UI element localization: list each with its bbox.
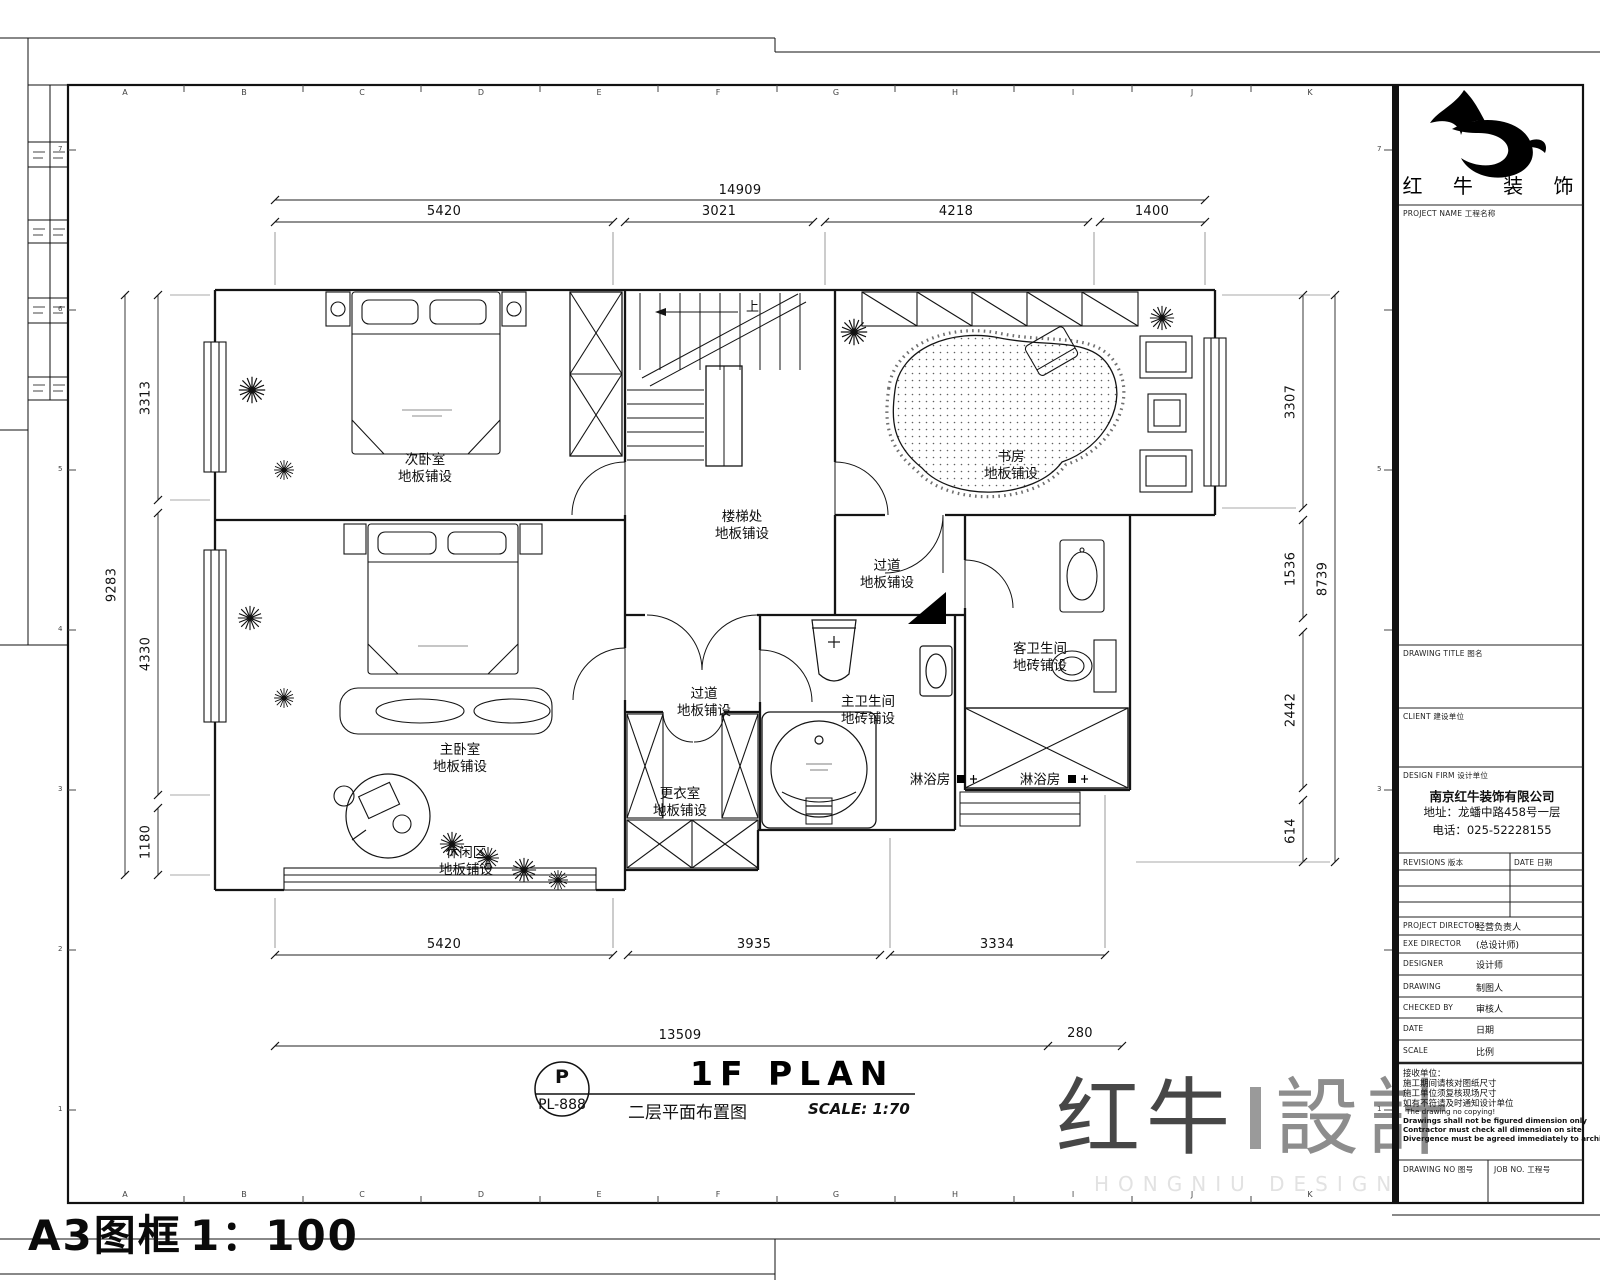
tb-row-label: SCALE [1403, 1046, 1428, 1055]
grid-letter: D [478, 1190, 484, 1199]
grid-letter: C [359, 88, 365, 97]
grid-number: 3 [1377, 785, 1381, 793]
stair-up-label: 上 [746, 296, 759, 315]
room-label-master-bath: 主卫生间地砖铺设 [841, 694, 895, 728]
grid-letter: A [122, 88, 127, 97]
cad-drawing-sheet: 红牛 設計 HONGNIU DESIGN [0, 0, 1600, 1280]
grid-letter: G [833, 88, 839, 97]
grid-letter: E [596, 88, 601, 97]
grid-number: 5 [58, 465, 62, 473]
tb-revisions-label: REVISIONS 版本 [1403, 857, 1463, 868]
grid-letter: C [359, 1190, 365, 1199]
room-label-bedroom2: 次卧室地板铺设 [398, 452, 452, 486]
dim-left-2: 4330 [139, 637, 154, 671]
logo-swoosh-icon [1430, 90, 1546, 178]
dim-bottom-3: 3334 [980, 937, 1014, 952]
tb-company-name: 南京红牛装饰有限公司 [1429, 786, 1554, 805]
room-label-corridor-top: 过道地板铺设 [860, 558, 914, 592]
dim-right-total: 8739 [1316, 562, 1331, 596]
plan-title: 1F PLAN [690, 1054, 894, 1093]
tb-drawing-no-label: DRAWING NO 图号 [1403, 1164, 1473, 1175]
tb-client-label: CLIENT 建设单位 [1403, 711, 1464, 722]
grid-letter: B [241, 1190, 247, 1199]
dim-left-total: 9283 [105, 568, 120, 602]
titleblock-bar [1392, 85, 1399, 1203]
grid-number: 1 [1377, 1105, 1381, 1113]
grid-letter: A [122, 1190, 127, 1199]
tb-row-label: DATE [1403, 1024, 1423, 1033]
grid-letter: D [478, 88, 484, 97]
dim-right-2: 1536 [1284, 552, 1299, 586]
tb-row-value: 审核人 [1476, 1002, 1503, 1015]
grid-letter: I [1072, 88, 1074, 97]
tb-row-value: 制图人 [1476, 981, 1503, 994]
room-label-study: 书房地板铺设 [984, 449, 1038, 483]
tb-note: Divergence must be agreed immediately to… [1403, 1134, 1600, 1143]
bubble-number: PL-888 [538, 1097, 586, 1113]
tb-drawing-title-label: DRAWING TITLE 图名 [1403, 648, 1483, 659]
tb-row-value: 经营负责人 [1476, 920, 1521, 933]
dim-top-2: 3021 [702, 204, 736, 219]
grid-letter: K [1307, 1190, 1312, 1199]
room-label-dressing: 更衣室地板铺设 [653, 786, 707, 820]
tb-row-value: (总设计师) [1476, 938, 1519, 951]
dim-left-1: 3313 [139, 381, 154, 415]
grid-number: 7 [58, 145, 62, 153]
grid-letter: G [833, 1190, 839, 1199]
room-label-master-bedroom: 主卧室地板铺设 [433, 742, 487, 776]
dim-top-4: 1400 [1135, 204, 1169, 219]
grid-number: 2 [58, 945, 62, 953]
dim-bottom-offset: 280 [1067, 1026, 1093, 1041]
frame-scale-label: 1：100 [190, 1202, 359, 1263]
room-label-stairs: 楼梯处地板铺设 [715, 509, 769, 543]
dim-bottom-2: 3935 [737, 937, 771, 952]
tb-job-no-label: JOB NO. 工程号 [1494, 1164, 1550, 1175]
tb-row-value: 日期 [1476, 1023, 1494, 1036]
room-label-leisure: 休闲区地板铺设 [439, 845, 493, 879]
dim-bottom-1: 5420 [427, 937, 461, 952]
grid-number: 1 [58, 1105, 62, 1113]
bubble-letter: P [555, 1066, 569, 1088]
room-label-guest-bath: 客卫生间地砖铺设 [1013, 641, 1067, 675]
dim-top-3: 4218 [939, 204, 973, 219]
grid-letter: B [241, 88, 247, 97]
tb-note: The drawing no copying! [1406, 1107, 1495, 1116]
grid-letter: H [952, 1190, 958, 1199]
tb-row-label: DESIGNER [1403, 959, 1443, 968]
dim-left-3: 1180 [139, 825, 154, 859]
grid-number: 6 [58, 305, 62, 313]
grid-letter: J [1191, 88, 1193, 97]
room-label-corridor-left: 过道地板铺设 [677, 686, 731, 720]
tb-row-label: CHECKED BY [1403, 1003, 1453, 1012]
grid-number: 7 [1377, 145, 1381, 153]
tb-revisions-date-label: DATE 日期 [1514, 857, 1552, 868]
tb-row-label: PROJECT DIRECTOR [1403, 921, 1480, 930]
tb-row-value: 设计师 [1476, 958, 1503, 971]
tb-row-label: EXE DIRECTOR [1403, 939, 1461, 948]
frame-size-label: A3图框 [28, 1202, 182, 1263]
tb-row-label: DRAWING [1403, 982, 1441, 991]
tb-row-value: 比例 [1476, 1045, 1494, 1058]
dim-top-1: 5420 [427, 204, 461, 219]
grid-letter: H [952, 88, 958, 97]
dim-bottom-total: 13509 [659, 1028, 702, 1043]
grid-letter: J [1191, 1190, 1193, 1199]
room-label-shower2: 淋浴房 [1020, 772, 1061, 789]
plan-subtitle: 二层平面布置图 [628, 1098, 747, 1123]
tb-project-name-label: PROJECT NAME 工程名称 [1403, 208, 1496, 219]
tb-design-firm-label: DESIGN FIRM 设计单位 [1403, 770, 1488, 781]
dim-right-4: 614 [1284, 818, 1299, 844]
plan-scale: SCALE: 1:70 [808, 1100, 910, 1118]
tb-company-address: 地址：龙蟠中路458号一层 [1424, 804, 1561, 820]
tb-company-phone: 电话：025-52228155 [1432, 822, 1551, 838]
room-label-shower1: 淋浴房 [910, 772, 951, 789]
grid-letter: K [1307, 88, 1312, 97]
grid-letter: F [716, 1190, 721, 1199]
grid-number: 4 [58, 625, 62, 633]
company-logo-name: 红 牛 装 饰 [1402, 170, 1585, 199]
dim-right-1: 3307 [1284, 385, 1299, 419]
dim-top-total: 14909 [719, 183, 762, 198]
grid-letter: E [596, 1190, 601, 1199]
grid-letter: I [1072, 1190, 1074, 1199]
grid-number: 5 [1377, 465, 1381, 473]
tb-note: Drawings shall not be figured dimension … [1403, 1116, 1587, 1125]
tb-note: Contractor must check all dimension on s… [1403, 1125, 1582, 1134]
grid-letter: F [716, 88, 721, 97]
grid-number: 3 [58, 785, 62, 793]
dim-right-3: 2442 [1284, 693, 1299, 727]
